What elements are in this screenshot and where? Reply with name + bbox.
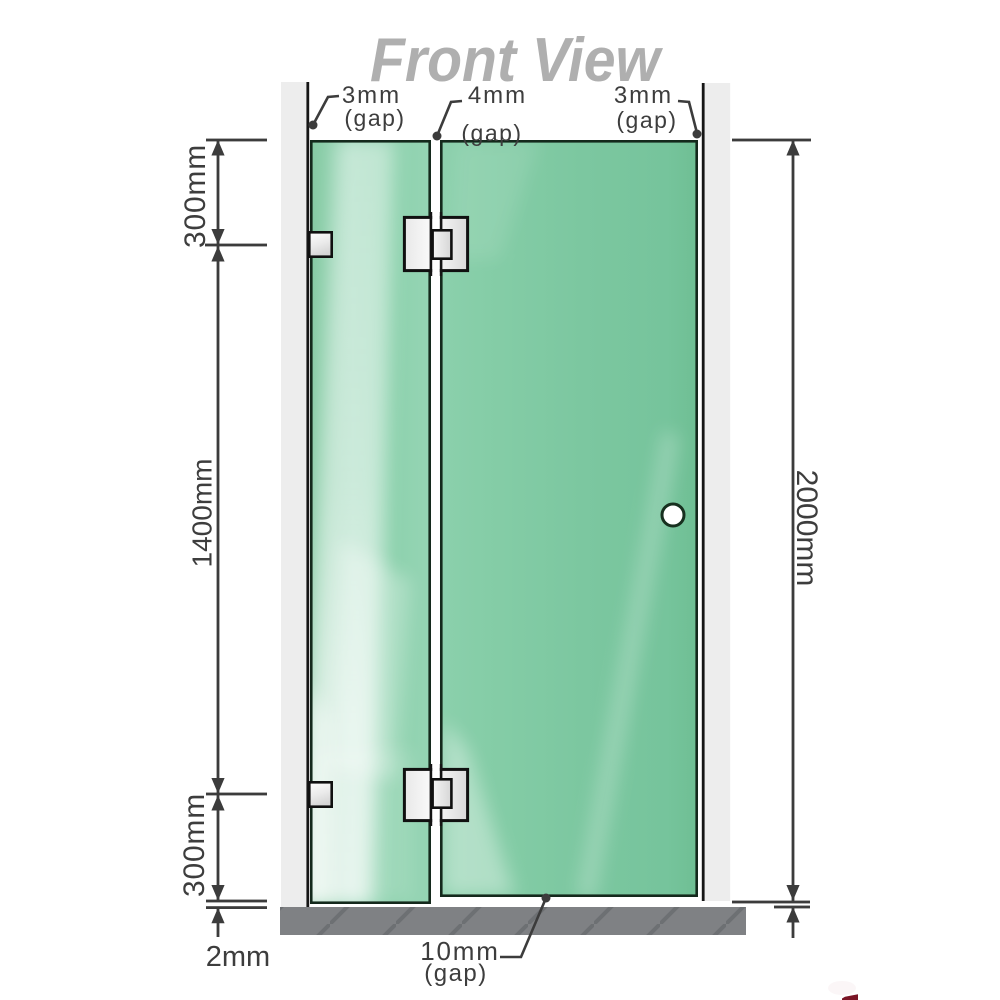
svg-text:(gap): (gap) (616, 107, 677, 133)
svg-text:3mm: 3mm (614, 82, 673, 109)
svg-text:4mm: 4mm (468, 82, 527, 109)
svg-text:300mm: 300mm (178, 793, 211, 897)
svg-text:2000mm: 2000mm (790, 470, 823, 587)
svg-text:1400mm: 1400mm (186, 459, 217, 568)
svg-text:(gap): (gap) (461, 120, 522, 146)
svg-text:300mm: 300mm (179, 144, 212, 248)
svg-text:(gap): (gap) (344, 105, 405, 131)
svg-text:(gap): (gap) (424, 960, 488, 987)
svg-text:2mm: 2mm (206, 941, 270, 973)
